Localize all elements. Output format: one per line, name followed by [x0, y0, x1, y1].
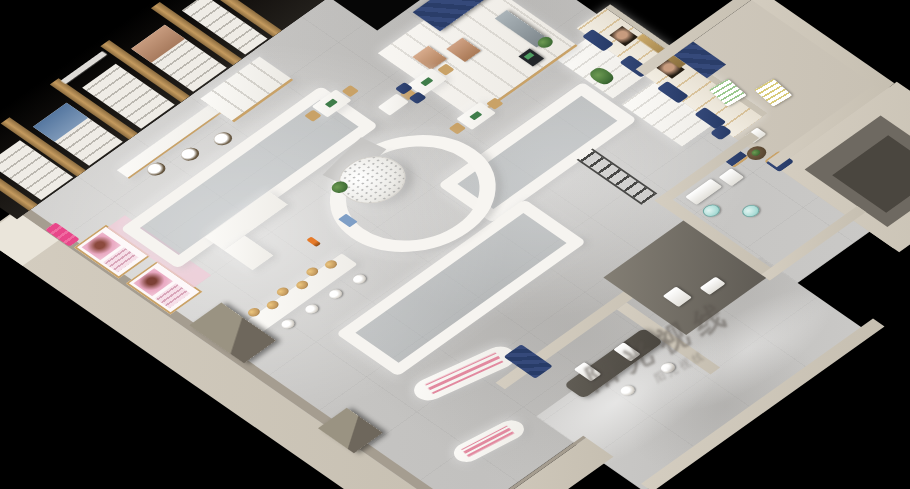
island-portrait-poster	[446, 38, 481, 62]
tray	[469, 111, 482, 120]
tray	[420, 77, 433, 86]
portrait-frame	[609, 26, 638, 46]
vending-screen	[524, 52, 535, 60]
vending-machine	[518, 48, 544, 66]
store-3d-render: 阳光视线 阳光视线	[0, 0, 910, 489]
table-plant	[750, 148, 762, 157]
tray	[325, 99, 338, 108]
navy-canopy	[413, 0, 508, 31]
